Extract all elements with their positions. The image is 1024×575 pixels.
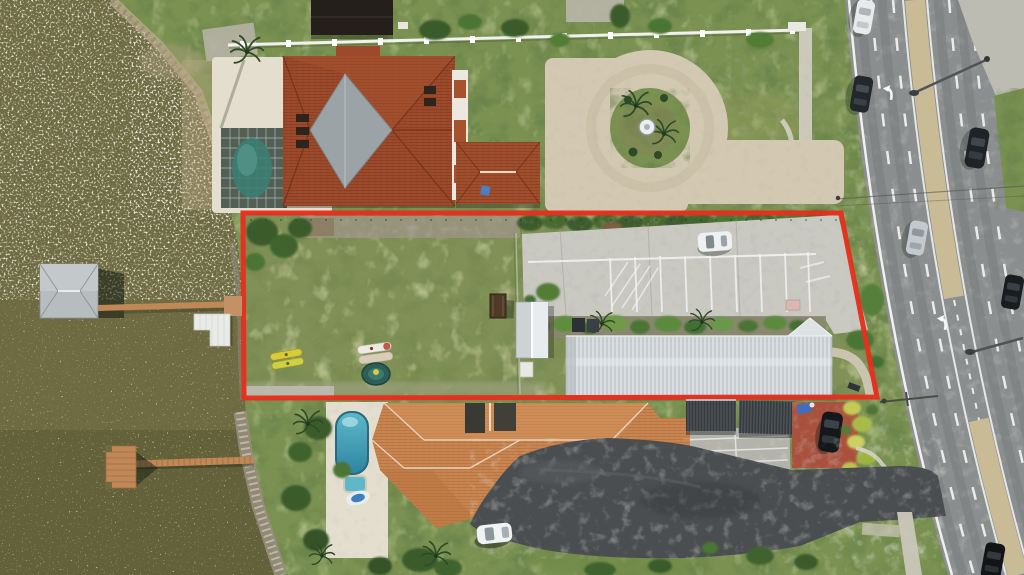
detached-garage [456, 142, 540, 208]
blue-equipment [480, 185, 490, 195]
aerial-photo-canvas [0, 0, 1024, 575]
spa [344, 476, 366, 492]
fountain [639, 119, 655, 135]
yard-debris [398, 22, 408, 29]
highlighted-parcel [245, 210, 884, 400]
driveway-island [610, 88, 690, 168]
white-box [520, 362, 533, 377]
trash-bins [572, 318, 585, 332]
white-wall-piece [788, 22, 806, 31]
paver-driveway [545, 50, 845, 212]
utility-pad [786, 300, 800, 310]
teal-raft [362, 363, 390, 385]
courtyard-notch [465, 403, 485, 433]
courtyard-notch [494, 403, 516, 431]
north-house-roof [283, 46, 468, 207]
carports [686, 399, 795, 438]
pool-enclosure [221, 128, 287, 208]
aerial-photo [0, 0, 1024, 575]
